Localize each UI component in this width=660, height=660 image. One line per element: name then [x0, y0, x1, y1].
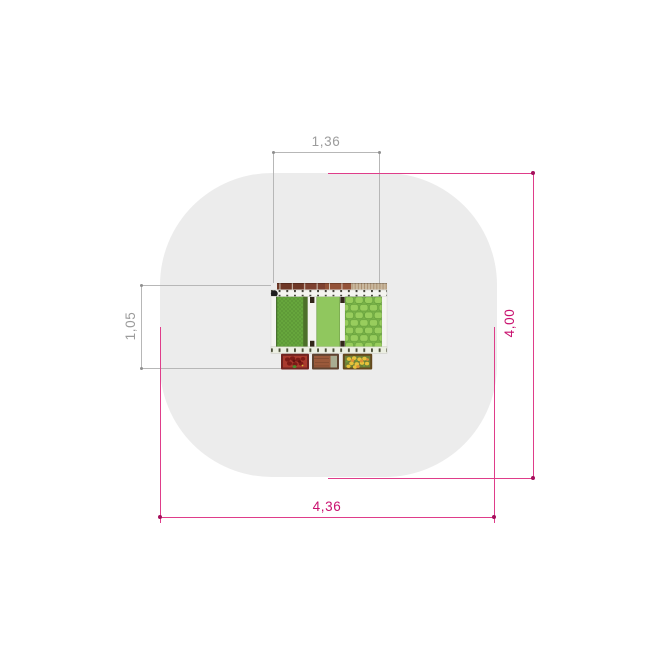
item-depth-dimension-label: 1,05 — [124, 296, 138, 356]
item-width-extension-left — [273, 152, 274, 283]
zone-width-extension-left — [160, 327, 161, 523]
planter-box-red — [281, 354, 309, 370]
scale-panel-right — [345, 297, 382, 350]
zone-width-dimension-label: 4,36 — [287, 500, 367, 514]
planter-box-soil — [312, 354, 339, 370]
divider-posts — [308, 297, 317, 347]
item-depth-extension-top — [141, 285, 271, 286]
item-width-dimension-label: 1,36 — [296, 135, 356, 149]
bottom-rail — [271, 347, 387, 354]
dimension-endpoint — [531, 171, 535, 175]
dimension-endpoint — [378, 151, 381, 154]
side-frame-left — [271, 296, 276, 347]
dimension-endpoint — [272, 151, 275, 154]
planter-box-yellow — [343, 354, 372, 370]
item-depth-dimension-line — [141, 285, 142, 368]
handle-knob — [271, 290, 278, 297]
zone-height-dimension-label: 4,00 — [503, 293, 517, 353]
zone-width-extension-right — [494, 327, 495, 523]
dimension-endpoint — [492, 515, 496, 519]
item-depth-extension-bottom — [141, 368, 283, 369]
zone-width-dimension-line — [160, 517, 495, 518]
divider-posts — [340, 297, 345, 347]
dimension-endpoint — [158, 515, 162, 519]
zone-height-connector-top — [328, 173, 533, 174]
center-panel — [316, 297, 340, 347]
dimension-endpoint — [140, 367, 143, 370]
dimension-endpoint — [531, 476, 535, 480]
dimension-endpoint — [140, 284, 143, 287]
plan-drawing-canvas: 1,36 1,05 4,36 4,00 — [0, 0, 660, 660]
top-rail — [271, 290, 387, 296]
side-frame-right — [382, 296, 387, 347]
planter-unit — [268, 281, 390, 373]
zone-height-connector-bottom — [328, 478, 533, 479]
back-plank-row — [277, 283, 387, 290]
zone-height-dimension-line — [533, 173, 534, 479]
item-width-dimension-line — [273, 152, 379, 153]
grass-panel-left — [276, 297, 308, 347]
